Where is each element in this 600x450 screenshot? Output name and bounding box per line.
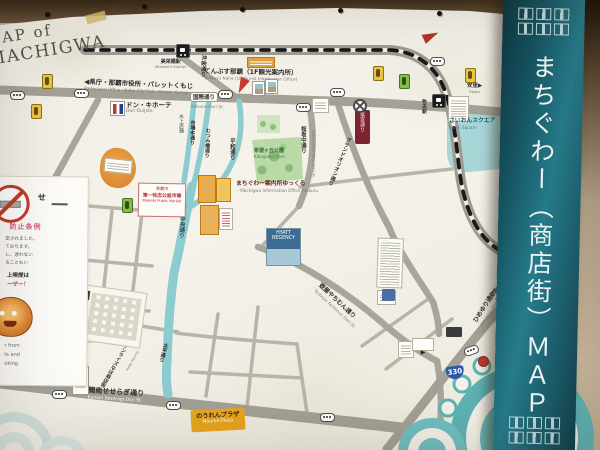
station-label-miebashi: 美栄橋駅 Miebashi Station (155, 59, 187, 70)
place-label-nouren: のうれんプラザ Nouren Plaza (190, 408, 245, 433)
no-smoking-icon (0, 185, 30, 223)
street-label-ryugu: 竜宮通り (355, 110, 370, 144)
bus-stop-icon-8 (166, 401, 181, 410)
yukkuru-en: ・Machigwa Information Office Yukkuru (236, 188, 318, 193)
notice-body-1: 定されました。 (5, 237, 37, 243)
blue-sign-chip (382, 289, 395, 301)
green-marker-icon-1 (122, 198, 133, 213)
street-label-mutsumibashi: むつみ橋通り (203, 128, 211, 158)
push-pin-2 (142, 4, 147, 9)
direction-label-prefecture: ◀県庁・那覇市役所・パレットくもじ Prefectural Office・Nah… (84, 78, 193, 96)
push-pin-1 (45, 12, 50, 17)
street-label-grand-orion: グランドオリオン通り (327, 136, 353, 187)
place-label-kibogaoka: 希望ヶ丘公園 Kibogaoka Park (254, 148, 285, 159)
saion-en: Saion Square (449, 125, 495, 130)
statue-marker-icon-4 (465, 68, 476, 83)
kibogaoka-en: Kibogaoka Park (254, 154, 285, 159)
banner-pattern-bottom (509, 416, 561, 444)
red-marker-icon (478, 356, 489, 367)
street-label-ichiba-hon: 市場本通り (189, 120, 196, 145)
photo-icon-1 (252, 81, 265, 96)
building-orange-3 (200, 205, 219, 235)
bus-stop-icon-1 (10, 91, 25, 100)
koban-police-icon (353, 99, 367, 113)
banner-title: まちぐわー（商店街）ＭＡＰ (517, 54, 561, 419)
don-quijote-jp: ドン・キホーテ (126, 101, 172, 109)
vertical-banner: まちぐわー（商店街）ＭＡＰ (493, 0, 586, 450)
sign-orange-block (104, 158, 133, 175)
direction-label-asato-top: 安里▶ Asato (467, 83, 482, 95)
statue-marker-icon-2 (31, 104, 42, 119)
bus-stop-icon-5 (296, 103, 311, 112)
banner-pattern-top (518, 7, 570, 35)
street-label-heiwa: 平和通り (228, 138, 235, 160)
bus-stop-icon-6 (430, 57, 445, 66)
route-330-shield: 330 (445, 365, 465, 380)
bus-stop-icon-10 (463, 344, 480, 358)
shisa-mascot-icon (0, 297, 33, 337)
photo-of-map-poster: MAP of MACHIGWA ◀県庁・那覇市役所・パレットくもじ Prefec… (0, 0, 600, 450)
tenbusu-tag (247, 57, 275, 68)
place-label-saion: さいおんスクエア Saion Square (449, 118, 495, 130)
place-label-tenbusu: てんぶす那覇（1F観光案内所） Tenbusu Naha (1F Tourist… (204, 67, 298, 82)
building-sign-white (219, 208, 233, 230)
ryugu-jp: 竜宮通り (359, 112, 366, 132)
notice-en-1: r from (4, 343, 19, 349)
bus-stop-icon-9 (320, 413, 335, 422)
push-pin-5 (437, 11, 442, 16)
street-label-kokusai-en: Kokusai Dori St. (191, 104, 224, 110)
photo-icon-2 (265, 79, 278, 94)
miebashi-station-icon (176, 44, 190, 58)
map-legend-box (376, 238, 404, 289)
market-stall-grid (86, 292, 141, 341)
street-label-sakurazaka-jp: 桜坂中通り (299, 126, 306, 154)
landmark-orange-block (98, 146, 138, 190)
bus-stop-icon-2 (74, 89, 89, 98)
notice-body-5: 上喫煙は (7, 273, 29, 280)
statue-marker-icon-3 (373, 66, 384, 81)
notice-body-6: ーザー！ (7, 282, 29, 289)
notice-body-4: ることもい (5, 261, 28, 267)
street-label-tsuboya: 壺屋やちむん通り Tsuboya Yachimun Dori St. (313, 282, 362, 329)
yukkuru-jp: まちぐわー案内所ゆっくる (236, 181, 318, 188)
dark-sign-chip (446, 327, 462, 337)
hyatt-line2: REGENCY (267, 236, 300, 241)
notice-title-rule (52, 203, 68, 205)
place-label-hyatt: HYATT REGENCY (266, 228, 301, 266)
tenbusu-en: Tenbusu Naha (1F Tourist Information Off… (204, 75, 298, 82)
green-marker-icon-2 (399, 74, 410, 89)
bus-stop-icon-7 (52, 390, 67, 399)
street-label-sakurazaka-en: Sakurazaka Naka Dori St. (311, 130, 316, 178)
place-label-makishi-market: 那覇市 第一牧志公設市場 Makishi Public Market (138, 183, 187, 218)
market-en: Makishi Public Market (139, 199, 185, 204)
makishi-station-icon (432, 94, 446, 108)
place-label-don-quijote: ドン・キホーテ Don Quijote (126, 101, 172, 115)
place-label-yukkuru: まちぐわー案内所ゆっくる ・Machigwa Information Offic… (236, 181, 318, 193)
notice-subtitle-fragment: 防止条例 (9, 223, 41, 232)
street-label-taihei: 太平通り (157, 342, 169, 363)
saion-jp: さいおんスクエア (449, 118, 495, 125)
notice-en-2: ts and (4, 352, 20, 358)
statue-marker-icon-1 (42, 74, 53, 89)
sign-small-1 (312, 98, 329, 113)
compass-north-icon (422, 28, 441, 44)
building-orange-2 (216, 178, 231, 202)
notice-body-2: ております。 (5, 245, 32, 251)
street-label-kokusai-jp: 国際通り (190, 92, 218, 102)
no-smoking-notice-panel: せ 防止条例 定されました。 ております。 し、迷わない ることもい 上喫煙は … (0, 176, 89, 387)
street-label-sunrise-jp: サンライズなは商店街 (99, 342, 129, 388)
push-pin-3 (240, 7, 245, 12)
street-label-kainan-seseragi: 開南せせらぎ通り Kainan Seseragi Dori St. (88, 386, 145, 404)
station-label-makishi: 牧志駅 (420, 99, 426, 113)
miebashi-en: Miebashi Station (155, 65, 187, 70)
notice-title-fragment: せ (38, 193, 46, 203)
notice-body-3: し、迷わない (5, 253, 33, 259)
tsuboya-jp: 壺屋やちむん通り (317, 282, 363, 325)
push-pin-4 (338, 8, 343, 13)
bus-stop-icon-4 (330, 88, 345, 97)
asato-top-en: Asato (467, 90, 482, 95)
arrow-sign: ▶ (412, 338, 434, 351)
building-orange-1 (198, 175, 216, 203)
don-quijote-en: Don Quijote (126, 109, 172, 115)
don-quijote-icon (110, 101, 125, 116)
street-label-suijo-tenpo: 水上店舗 (177, 114, 183, 133)
street-label-sunrise-en: Sunrise Naha (125, 350, 140, 372)
bus-stop-icon-3 (218, 90, 233, 99)
notice-en-3: oking (4, 361, 18, 367)
arrow-right-icon: ▶ (421, 349, 426, 356)
